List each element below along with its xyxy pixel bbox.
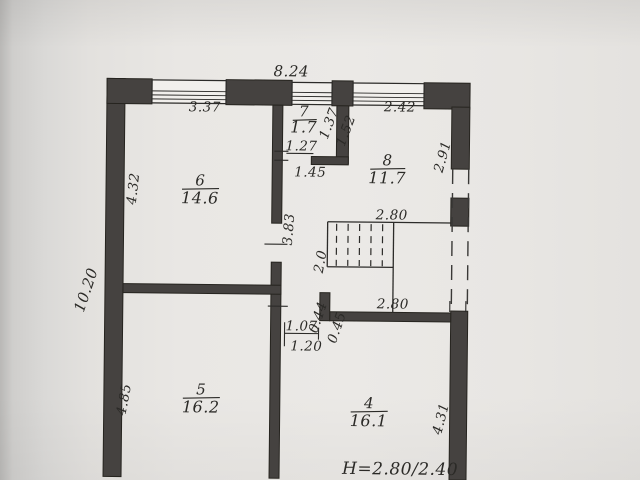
room-7-label: 7 1.7 [290,102,318,136]
window-room7 [292,82,332,104]
room-7-area: 1.7 [290,117,317,136]
dim-door7-full: 1.45 [294,164,326,180]
dim-room6-width: 3.37 [189,99,221,115]
dashed-boundary [451,169,468,311]
wall-top-pier-1 [226,80,292,106]
room-5-area: 16.2 [182,397,220,416]
dim-room6-height: 4.32 [124,172,144,207]
scanned-paper: 6 14.6 7 1.7 8 11.7 5 16.2 4 [0,0,640,480]
dim-stair-width: 2.0 [311,249,331,276]
dim-stair-bottom: 2.80 [376,296,409,312]
wall-top-pier-2 [332,81,353,106]
room-4-area: 16.1 [350,411,388,430]
wall-right-lower [449,311,468,480]
wall-right-upper [451,107,470,169]
dim-left-total: 10.20 [70,265,102,314]
stair-treads [336,224,382,266]
dim-top-total: 8.24 [273,62,309,80]
room-8-number: 8 [382,151,392,169]
floor-plan: 6 14.6 7 1.7 8 11.7 5 16.2 4 [0,0,640,480]
room-4-label: 4 16.1 [350,394,388,430]
wall-left [103,78,125,476]
room-5-number: 5 [196,380,206,398]
room-8-label: 8 11.7 [368,151,406,187]
dim-room8-width: 2.42 [383,99,416,115]
dim-hall-height: 3.83 [280,213,299,246]
wall-middle-upper [272,105,283,223]
room-8-area: 11.7 [368,168,406,187]
room-4-number: 4 [363,394,374,412]
wall-top-corner-left [107,78,152,103]
room-6-area: 14.6 [181,188,219,207]
ceiling-height-note: H=2.80/2.40 [341,459,458,480]
dim-door4-full: 1.20 [290,338,322,354]
room-5-label: 5 16.2 [182,380,220,416]
wall-top-corner-right [424,83,470,109]
dim-stair-top: 2.80 [375,207,408,223]
wall-room5-room6-divider [123,284,281,295]
wall-right-pier [451,198,469,226]
room-6-label: 6 14.6 [181,171,219,207]
dim-door7-clear: 1.27 [285,138,317,154]
room-6-number: 6 [195,171,205,189]
